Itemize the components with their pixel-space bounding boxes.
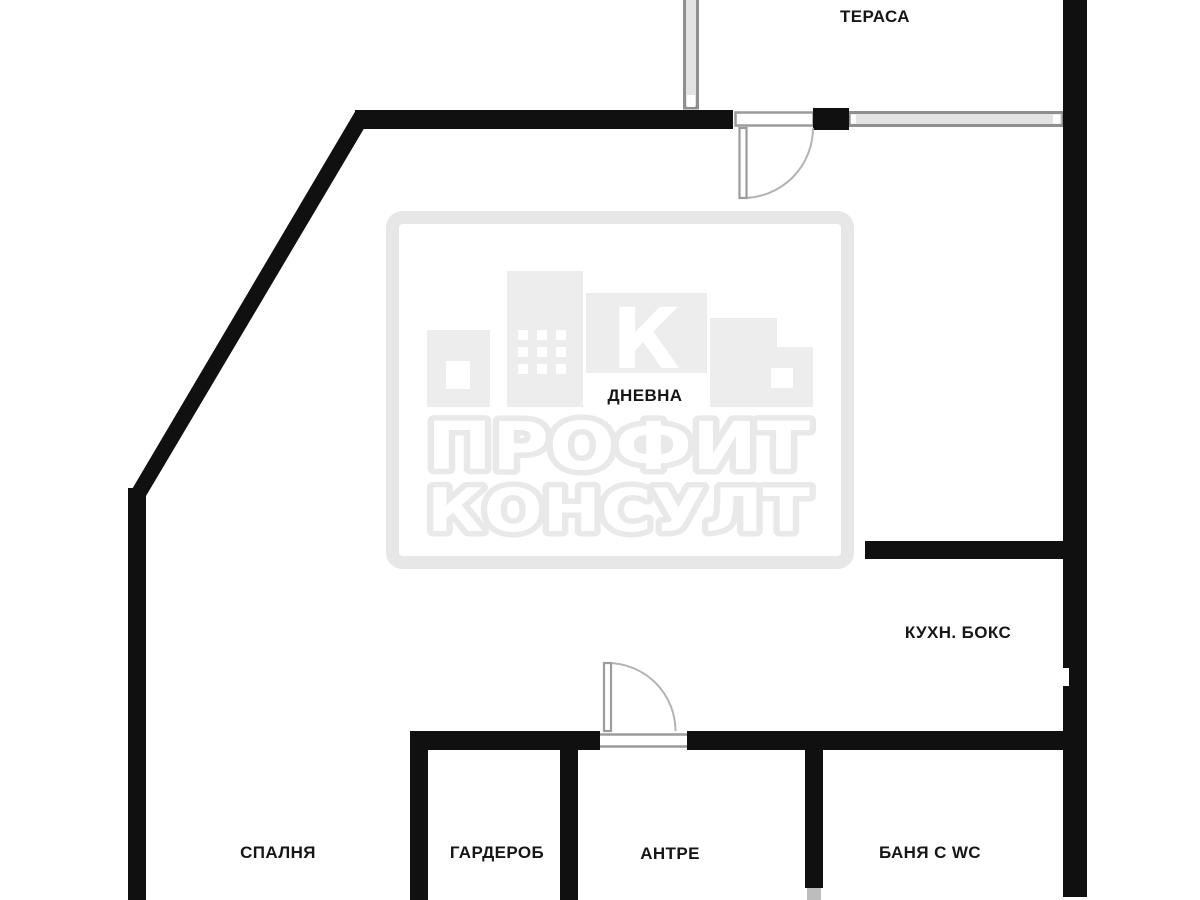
- watermark-line1: ПРОФИТ: [427, 408, 810, 485]
- wall-wardrobe-left: [410, 731, 428, 900]
- wall-bottom-left: [410, 731, 600, 750]
- hall-door-leaf: [604, 663, 611, 731]
- bath-door-threshold-cut: [807, 888, 821, 900]
- room-label-bedroom: СПАЛНЯ: [240, 843, 316, 863]
- wall-top: [355, 110, 733, 129]
- hall-door-arc: [608, 663, 676, 731]
- terrace-door-leaf: [740, 128, 747, 198]
- wall-kitchen: [865, 541, 1063, 559]
- terrace-partition-glazing: [685, 0, 698, 108]
- wall-hall-right: [805, 750, 823, 888]
- room-label-bath: БАНЯ С WC: [879, 843, 981, 863]
- hall-door: [604, 663, 676, 731]
- room-label-kitchen: КУХН. БОКС: [905, 623, 1011, 643]
- wall-right: [1063, 0, 1087, 897]
- hall-door-threshold: [599, 735, 689, 747]
- wall-bottom-right: [687, 731, 1063, 750]
- room-label-terrace: ТЕРАСА: [840, 7, 910, 27]
- terrace-window-cap-left: [851, 115, 856, 124]
- watermark-line2: КОНСУЛТ: [427, 476, 810, 546]
- wall-left: [128, 488, 146, 900]
- watermark-logo-letter: К: [612, 290, 681, 388]
- wall-wardrobe-right: [560, 750, 578, 900]
- floor-plan-drawing: К ПРОФИТ ПРОФИТ КОНСУЛТ КОНСУЛТ: [0, 0, 1200, 900]
- wall-diagonal: [128, 110, 375, 496]
- wall-right-notch: [1063, 668, 1069, 686]
- wall-top-segment: [813, 108, 849, 130]
- terrace-door: [740, 128, 814, 198]
- terrace-window-cap-right: [1053, 115, 1060, 124]
- terrace-partition-cap: [687, 95, 695, 107]
- room-label-living: ДНЕВНА: [608, 386, 683, 406]
- terrace-door-arc: [743, 128, 813, 198]
- terrace-window: [849, 113, 1063, 126]
- terrace-door-threshold: [736, 113, 814, 126]
- floor-plan: К ПРОФИТ ПРОФИТ КОНСУЛТ КОНСУЛТ: [0, 0, 1200, 900]
- room-label-wardrobe: ГАРДЕРОБ: [450, 843, 544, 863]
- room-label-hall: АНТРЕ: [640, 844, 700, 864]
